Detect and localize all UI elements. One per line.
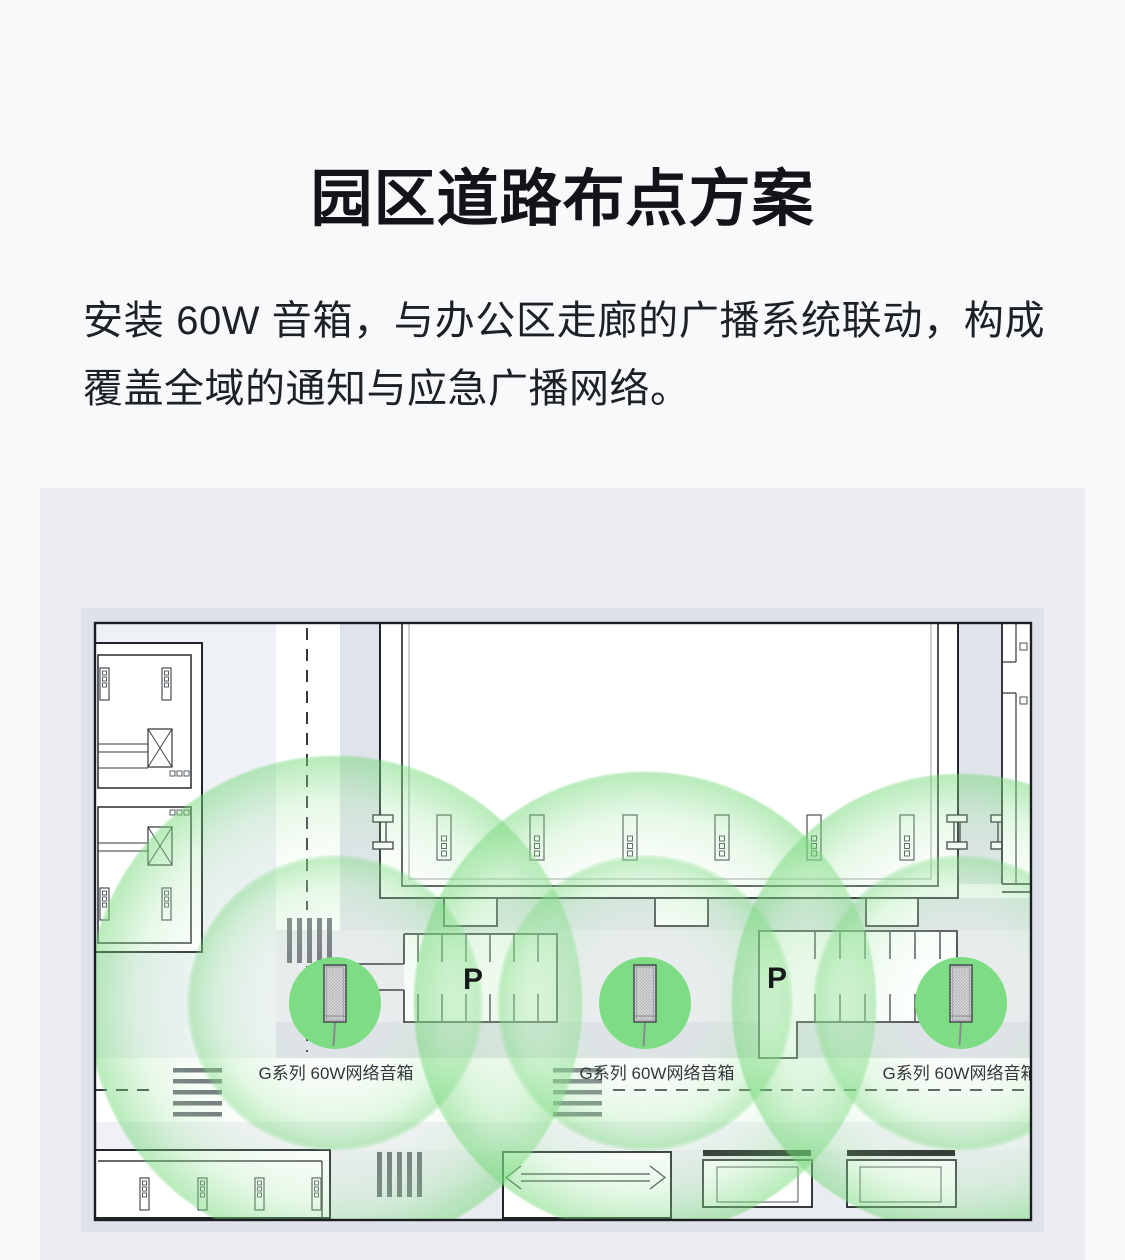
- page-description: 安装 60W 音箱，与办公区走廊的广播系统联动，构成覆盖全域的通知与应急广播网络…: [83, 287, 1045, 423]
- speaker-label-1: G系列 60W网络音箱: [259, 1064, 414, 1083]
- coverage-rings: [87, 755, 1044, 1232]
- page-title: 园区道路布点方案: [0, 148, 1125, 238]
- speaker-3: [915, 957, 1007, 1049]
- speaker-2: [599, 957, 691, 1049]
- speaker-1: [289, 957, 381, 1049]
- speaker-label-3: G系列 60W网络音箱: [883, 1064, 1038, 1083]
- parking-label-2: P: [767, 962, 787, 995]
- site-plan-map: P P G系列 60W网络音箱 G系列 60W网络音箱 G系列 60W网络音箱: [81, 608, 1044, 1232]
- parking-label-1: P: [463, 963, 483, 996]
- speaker-label-2: G系列 60W网络音箱: [580, 1064, 735, 1083]
